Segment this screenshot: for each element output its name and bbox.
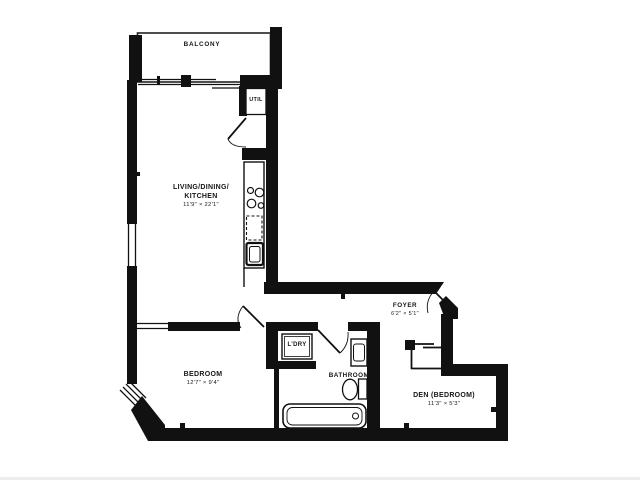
foyer-name: FOYER bbox=[355, 302, 455, 310]
living-dimensions: 11'9" × 22'1" bbox=[141, 202, 261, 210]
util-door bbox=[228, 118, 246, 147]
den-label: DEN (BEDROOM) 11'3" × 5'3" bbox=[384, 391, 504, 409]
balcony-label: BALCONY bbox=[152, 41, 252, 49]
kitchen-counter bbox=[244, 162, 264, 287]
bedroom-label: BEDROOM 12'7" × 9'4" bbox=[143, 370, 263, 388]
den-name: DEN (BEDROOM) bbox=[384, 391, 504, 400]
living-label-line1: LIVING/DINING/ bbox=[141, 183, 261, 192]
bathroom-label: BATHROOM bbox=[299, 372, 399, 380]
bathtub-icon bbox=[283, 404, 366, 428]
floor-plan-page: BALCONY UTIL LIVING/DINING/ KITCHEN 11'9… bbox=[0, 0, 640, 480]
toilet-icon bbox=[343, 379, 368, 400]
bedroom-door bbox=[238, 306, 264, 328]
den-dimensions: 11'3" × 5'3" bbox=[384, 401, 504, 409]
foyer-dimensions: 6'2" × 5'1" bbox=[355, 311, 455, 318]
laundry-label: L'DRY bbox=[267, 342, 327, 350]
living-label-line2: KITCHEN bbox=[141, 192, 261, 201]
floor-plan-drawing bbox=[0, 0, 640, 480]
bedroom-dimensions: 12'7" × 9'4" bbox=[143, 380, 263, 388]
living-dining-kitchen-label: LIVING/DINING/ KITCHEN 11'9" × 22'1" bbox=[141, 183, 261, 210]
windows bbox=[120, 76, 247, 407]
vanity-sink-icon bbox=[351, 339, 367, 366]
bedroom-name: BEDROOM bbox=[143, 370, 263, 379]
util-label: UTIL bbox=[236, 97, 276, 104]
foyer-label: FOYER 6'2" × 5'1" bbox=[355, 302, 455, 318]
